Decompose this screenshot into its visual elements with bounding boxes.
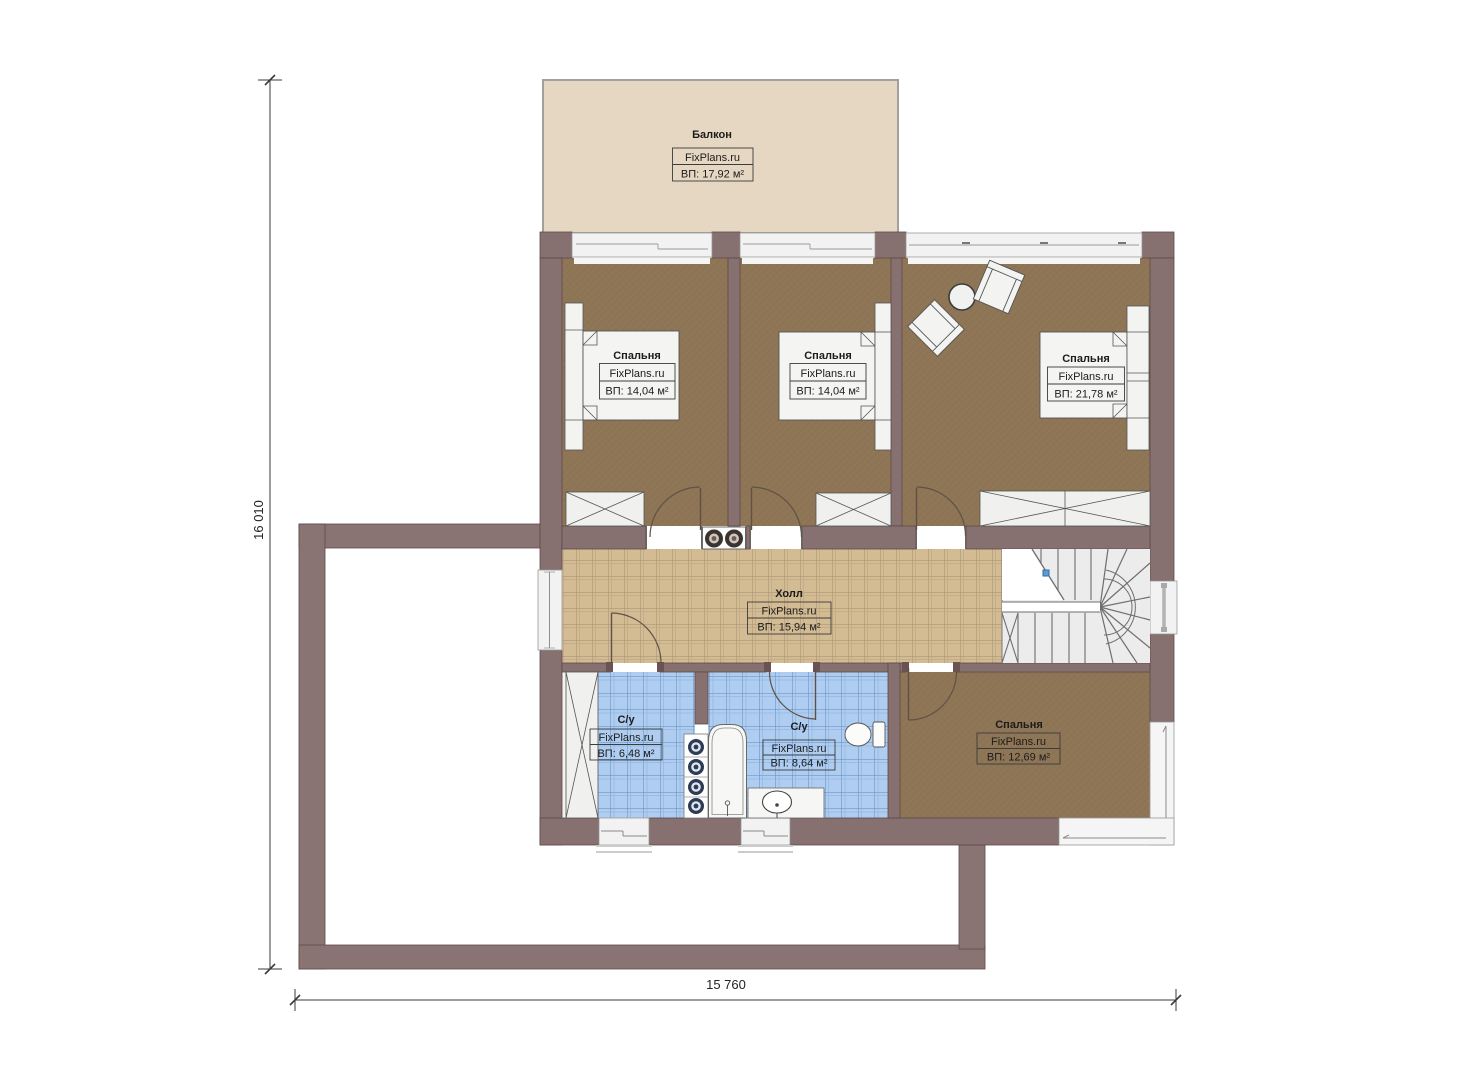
svg-text:FixPlans.ru: FixPlans.ru xyxy=(761,606,816,618)
svg-text:FixPlans.ru: FixPlans.ru xyxy=(991,736,1046,748)
svg-text:Спальня: Спальня xyxy=(804,350,852,362)
svg-text:С/у: С/у xyxy=(617,714,635,726)
svg-text:FixPlans.ru: FixPlans.ru xyxy=(800,368,855,380)
svg-text:ВП: 6,48 м²: ВП: 6,48 м² xyxy=(597,748,654,760)
svg-text:ВП: 17,92 м²: ВП: 17,92 м² xyxy=(681,169,745,181)
svg-text:Холл: Холл xyxy=(775,588,803,600)
svg-text:15 760: 15 760 xyxy=(706,977,746,992)
svg-text:Спальня: Спальня xyxy=(995,719,1043,731)
svg-text:FixPlans.ru: FixPlans.ru xyxy=(609,368,664,380)
svg-text:С/у: С/у xyxy=(790,721,808,733)
svg-text:ВП: 21,78 м²: ВП: 21,78 м² xyxy=(1054,389,1118,401)
svg-text:FixPlans.ru: FixPlans.ru xyxy=(1058,371,1113,383)
svg-text:ВП: 15,94 м²: ВП: 15,94 м² xyxy=(757,622,821,634)
svg-text:Спальня: Спальня xyxy=(1062,353,1110,365)
svg-text:FixPlans.ru: FixPlans.ru xyxy=(598,732,653,744)
svg-text:FixPlans.ru: FixPlans.ru xyxy=(685,152,740,164)
svg-text:ВП: 8,64 м²: ВП: 8,64 м² xyxy=(770,758,827,770)
svg-text:Балкон: Балкон xyxy=(692,129,732,141)
svg-text:ВП: 14,04 м²: ВП: 14,04 м² xyxy=(605,386,669,398)
svg-text:ВП: 14,04 м²: ВП: 14,04 м² xyxy=(796,386,860,398)
svg-text:16 010: 16 010 xyxy=(251,500,266,540)
svg-text:Спальня: Спальня xyxy=(613,350,661,362)
svg-text:FixPlans.ru: FixPlans.ru xyxy=(771,743,826,755)
svg-text:ВП: 12,69 м²: ВП: 12,69 м² xyxy=(987,752,1051,764)
